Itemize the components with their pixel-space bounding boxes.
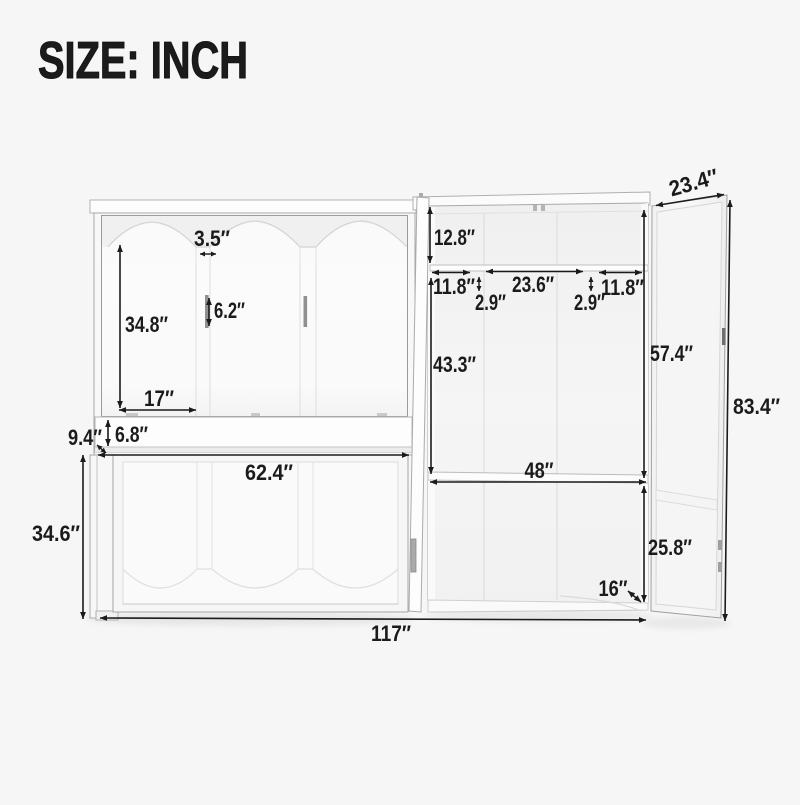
svg-text:16″: 16″ xyxy=(599,576,628,601)
svg-text:SIZE: INCH: SIZE: INCH xyxy=(38,32,248,90)
svg-text:34.6″: 34.6″ xyxy=(32,521,80,546)
svg-text:2.9″: 2.9″ xyxy=(574,290,605,315)
svg-text:48″: 48″ xyxy=(525,458,554,483)
svg-text:9.4″: 9.4″ xyxy=(68,425,102,450)
svg-text:34.8″: 34.8″ xyxy=(125,312,168,337)
svg-text:12.8″: 12.8″ xyxy=(434,225,475,250)
svg-text:11.8″: 11.8″ xyxy=(433,274,475,299)
svg-text:6.2″: 6.2″ xyxy=(214,298,245,323)
svg-text:23.6″: 23.6″ xyxy=(512,272,554,297)
svg-text:11.8″: 11.8″ xyxy=(601,275,644,300)
svg-text:2.9″: 2.9″ xyxy=(475,290,506,315)
svg-text:83.4″: 83.4″ xyxy=(733,394,780,419)
svg-text:6.8″: 6.8″ xyxy=(115,422,148,447)
svg-text:43.3″: 43.3″ xyxy=(433,352,476,377)
svg-text:117″: 117″ xyxy=(371,621,411,646)
svg-text:25.8″: 25.8″ xyxy=(648,535,692,560)
svg-text:17″: 17″ xyxy=(144,386,174,411)
svg-text:3.5″: 3.5″ xyxy=(194,226,230,251)
svg-text:57.4″: 57.4″ xyxy=(650,341,693,366)
svg-text:62.4″: 62.4″ xyxy=(245,460,293,485)
